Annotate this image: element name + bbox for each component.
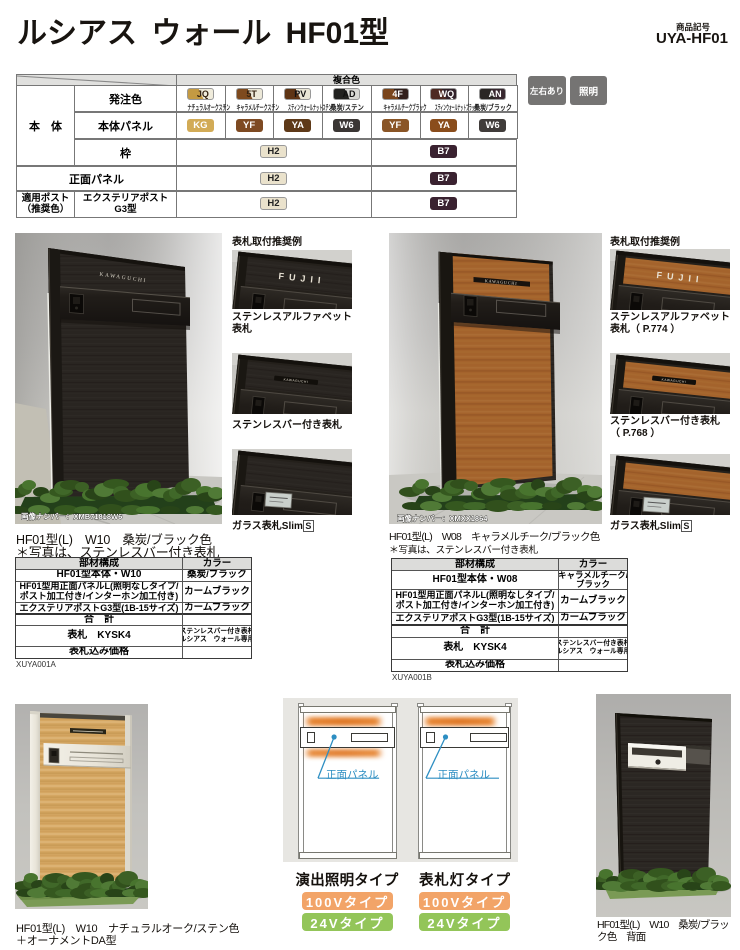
svg-text:画像ナンバー：XMB71818W6: 画像ナンバー：XMB71818W6 bbox=[21, 511, 122, 521]
svg-text:画像ナンバー：XMXX1864: 画像ナンバー：XMXX1864 bbox=[397, 513, 488, 523]
